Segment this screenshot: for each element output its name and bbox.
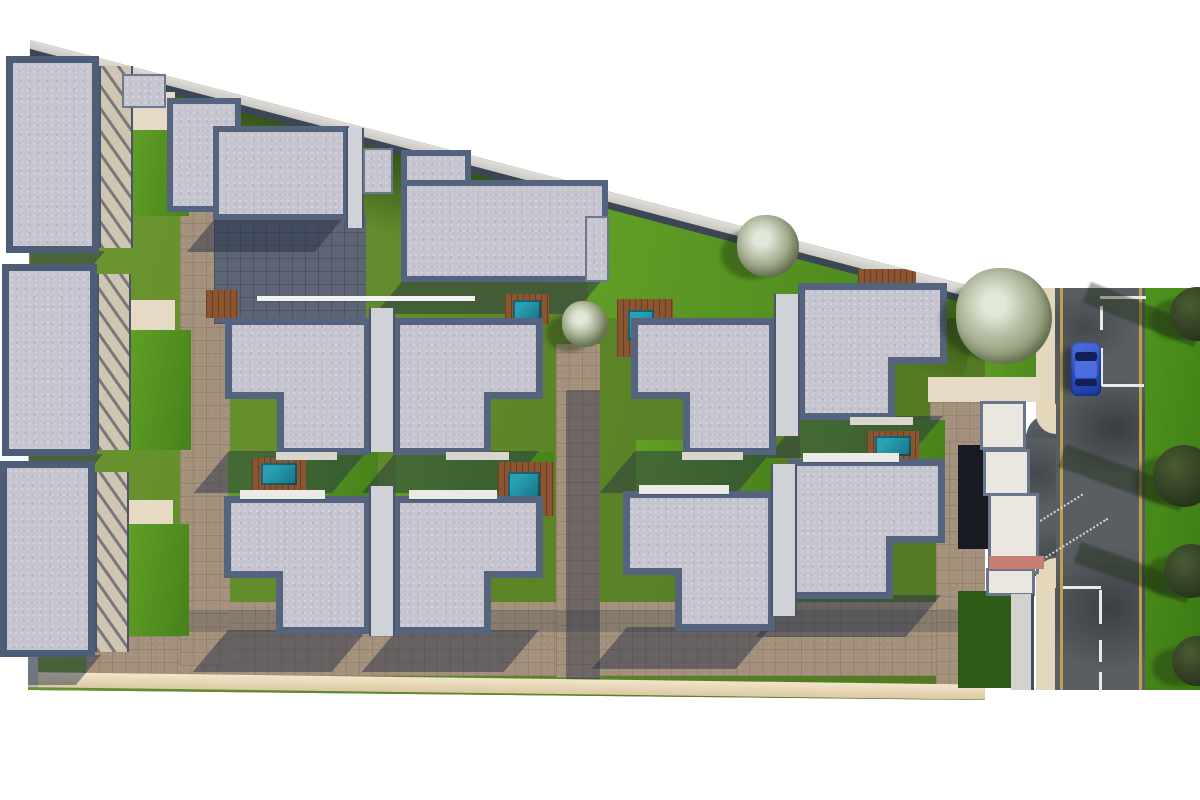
mid-alley-shade xyxy=(566,390,600,682)
villa-g-canopy xyxy=(639,485,729,494)
party-wall-ef xyxy=(369,486,395,636)
villa-c-sill xyxy=(682,452,743,460)
party-wall-cd xyxy=(774,294,800,436)
gate-pavilion-1 xyxy=(980,401,1026,450)
pool-court-5-water xyxy=(513,300,541,320)
pool-court-2-water xyxy=(508,472,540,498)
annex-roof-1 xyxy=(363,148,393,194)
road-white-mark-4 xyxy=(1102,384,1144,387)
block-3-roof xyxy=(0,461,95,657)
villa-d-sill xyxy=(850,417,913,425)
party-wall-ab xyxy=(369,308,395,452)
villa-a-sill xyxy=(276,452,337,460)
road-white-mark-6 xyxy=(1099,590,1102,624)
blue-car-rear-window xyxy=(1075,379,1097,386)
block-3-lawn xyxy=(125,524,189,636)
road-white-mark-7 xyxy=(1099,640,1102,662)
gate-lawn-pocket xyxy=(958,591,1011,688)
gate-crosswalk xyxy=(989,556,1044,569)
site-plan-render xyxy=(0,0,1200,800)
annex-roof-3 xyxy=(585,216,609,282)
party-wall-gh xyxy=(771,464,797,616)
annex-roof-2 xyxy=(122,74,166,108)
villa-row1-mid-part2 xyxy=(401,180,608,282)
gate-pavilion-4 xyxy=(986,568,1035,596)
deck-1 xyxy=(206,290,238,318)
blue-car-windshield xyxy=(1075,352,1097,361)
block-3-stairs xyxy=(95,472,129,652)
olive-tree-alley xyxy=(562,301,608,347)
block-2-roof xyxy=(2,264,97,456)
gate-walkway xyxy=(928,377,1040,402)
villa-b-sill xyxy=(446,452,509,460)
pergola-edge-long xyxy=(257,296,475,301)
olive-tree-gate xyxy=(956,268,1052,364)
road-white-mark-5 xyxy=(1063,586,1101,589)
road-yellow-line-1 xyxy=(1060,288,1063,690)
villa-row1-left-part2 xyxy=(213,126,349,220)
pool-court-1-water xyxy=(261,463,297,485)
gate-boundary-wall xyxy=(1011,594,1034,690)
road-white-mark-8 xyxy=(1099,672,1102,690)
olive-tree-lawn xyxy=(737,215,799,277)
block-2-lawn xyxy=(127,330,191,450)
villa-f-canopy xyxy=(409,490,497,499)
party-wall-row1 xyxy=(346,128,364,228)
block-2-stairs xyxy=(97,274,131,450)
gate-pavilion-2 xyxy=(983,449,1030,496)
villa-e-canopy xyxy=(240,490,325,499)
block-1-roof xyxy=(6,56,99,253)
blue-car-roof-panel xyxy=(1075,361,1097,378)
villa-h-canopy xyxy=(803,453,899,462)
